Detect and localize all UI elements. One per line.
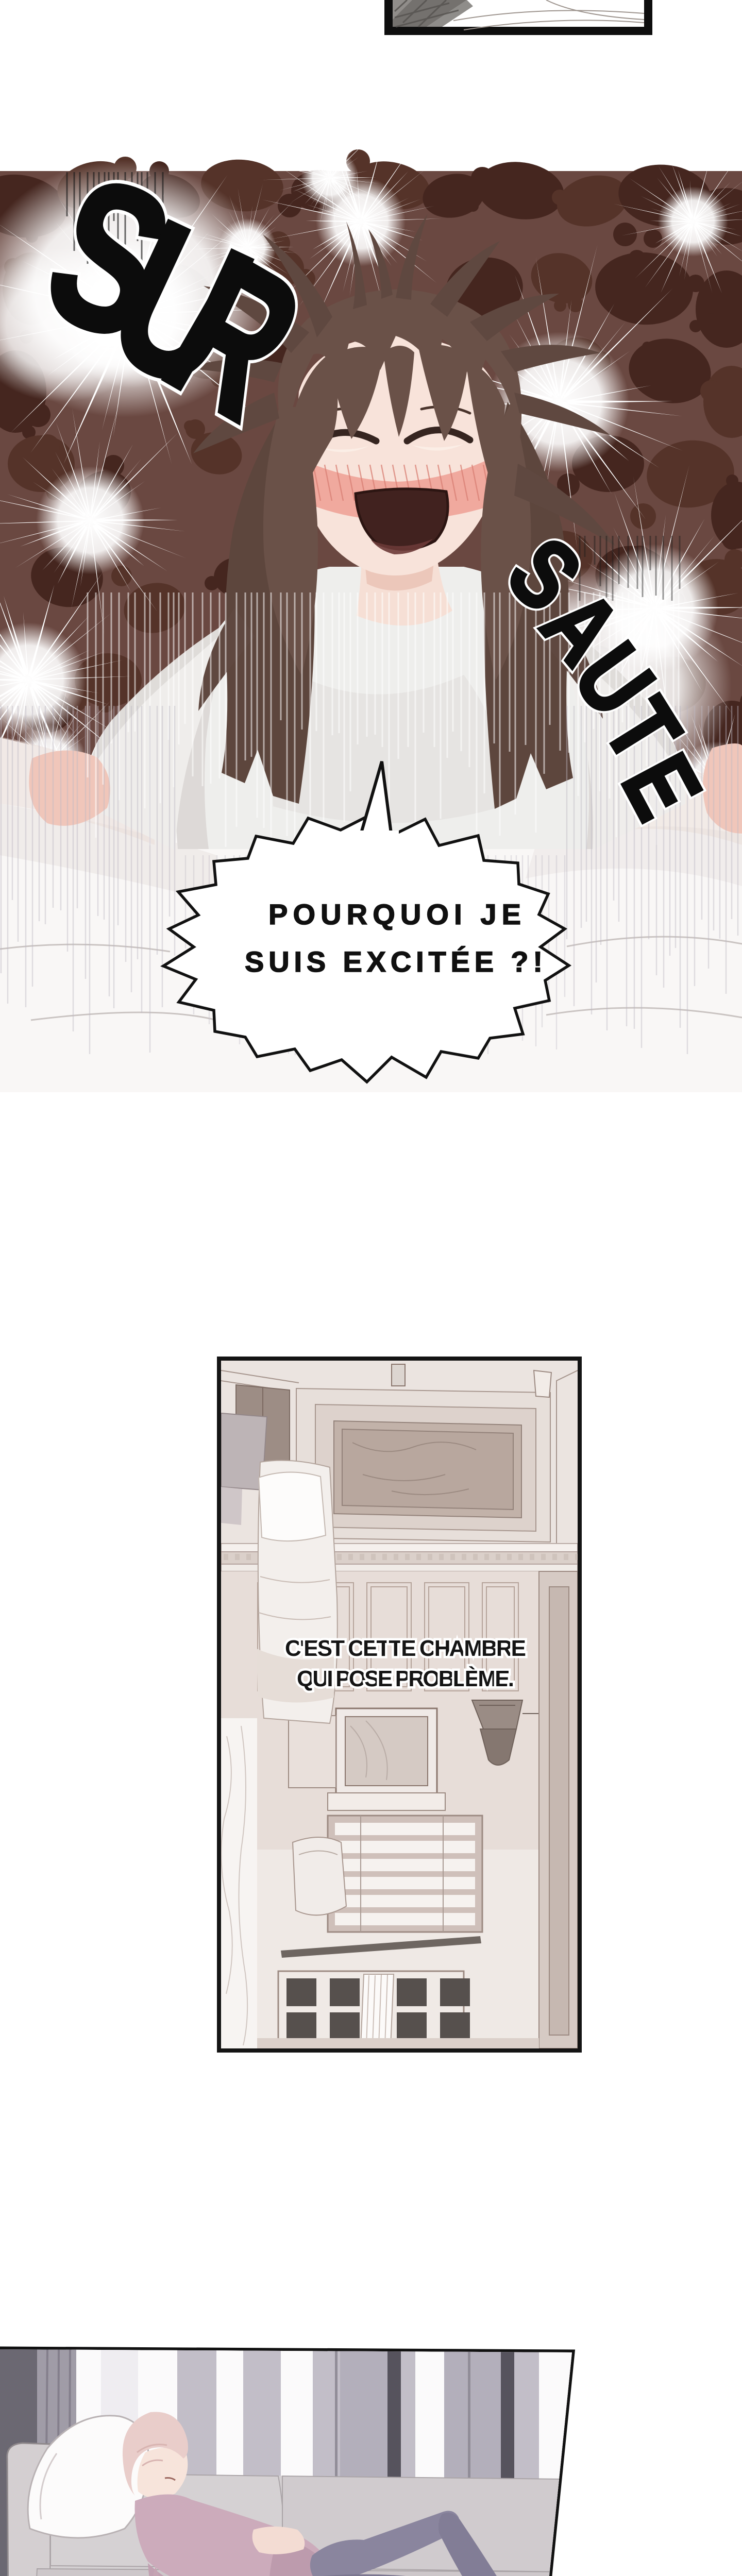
svg-text:C'EST CETTE CHAMBRE: C'EST CETTE CHAMBRE — [285, 1636, 526, 1661]
svg-text:QUI POSE PROBLÈME.: QUI POSE PROBLÈME. — [297, 1666, 514, 1691]
svg-text:POURQUOI JE: POURQUOI JE — [268, 898, 521, 930]
